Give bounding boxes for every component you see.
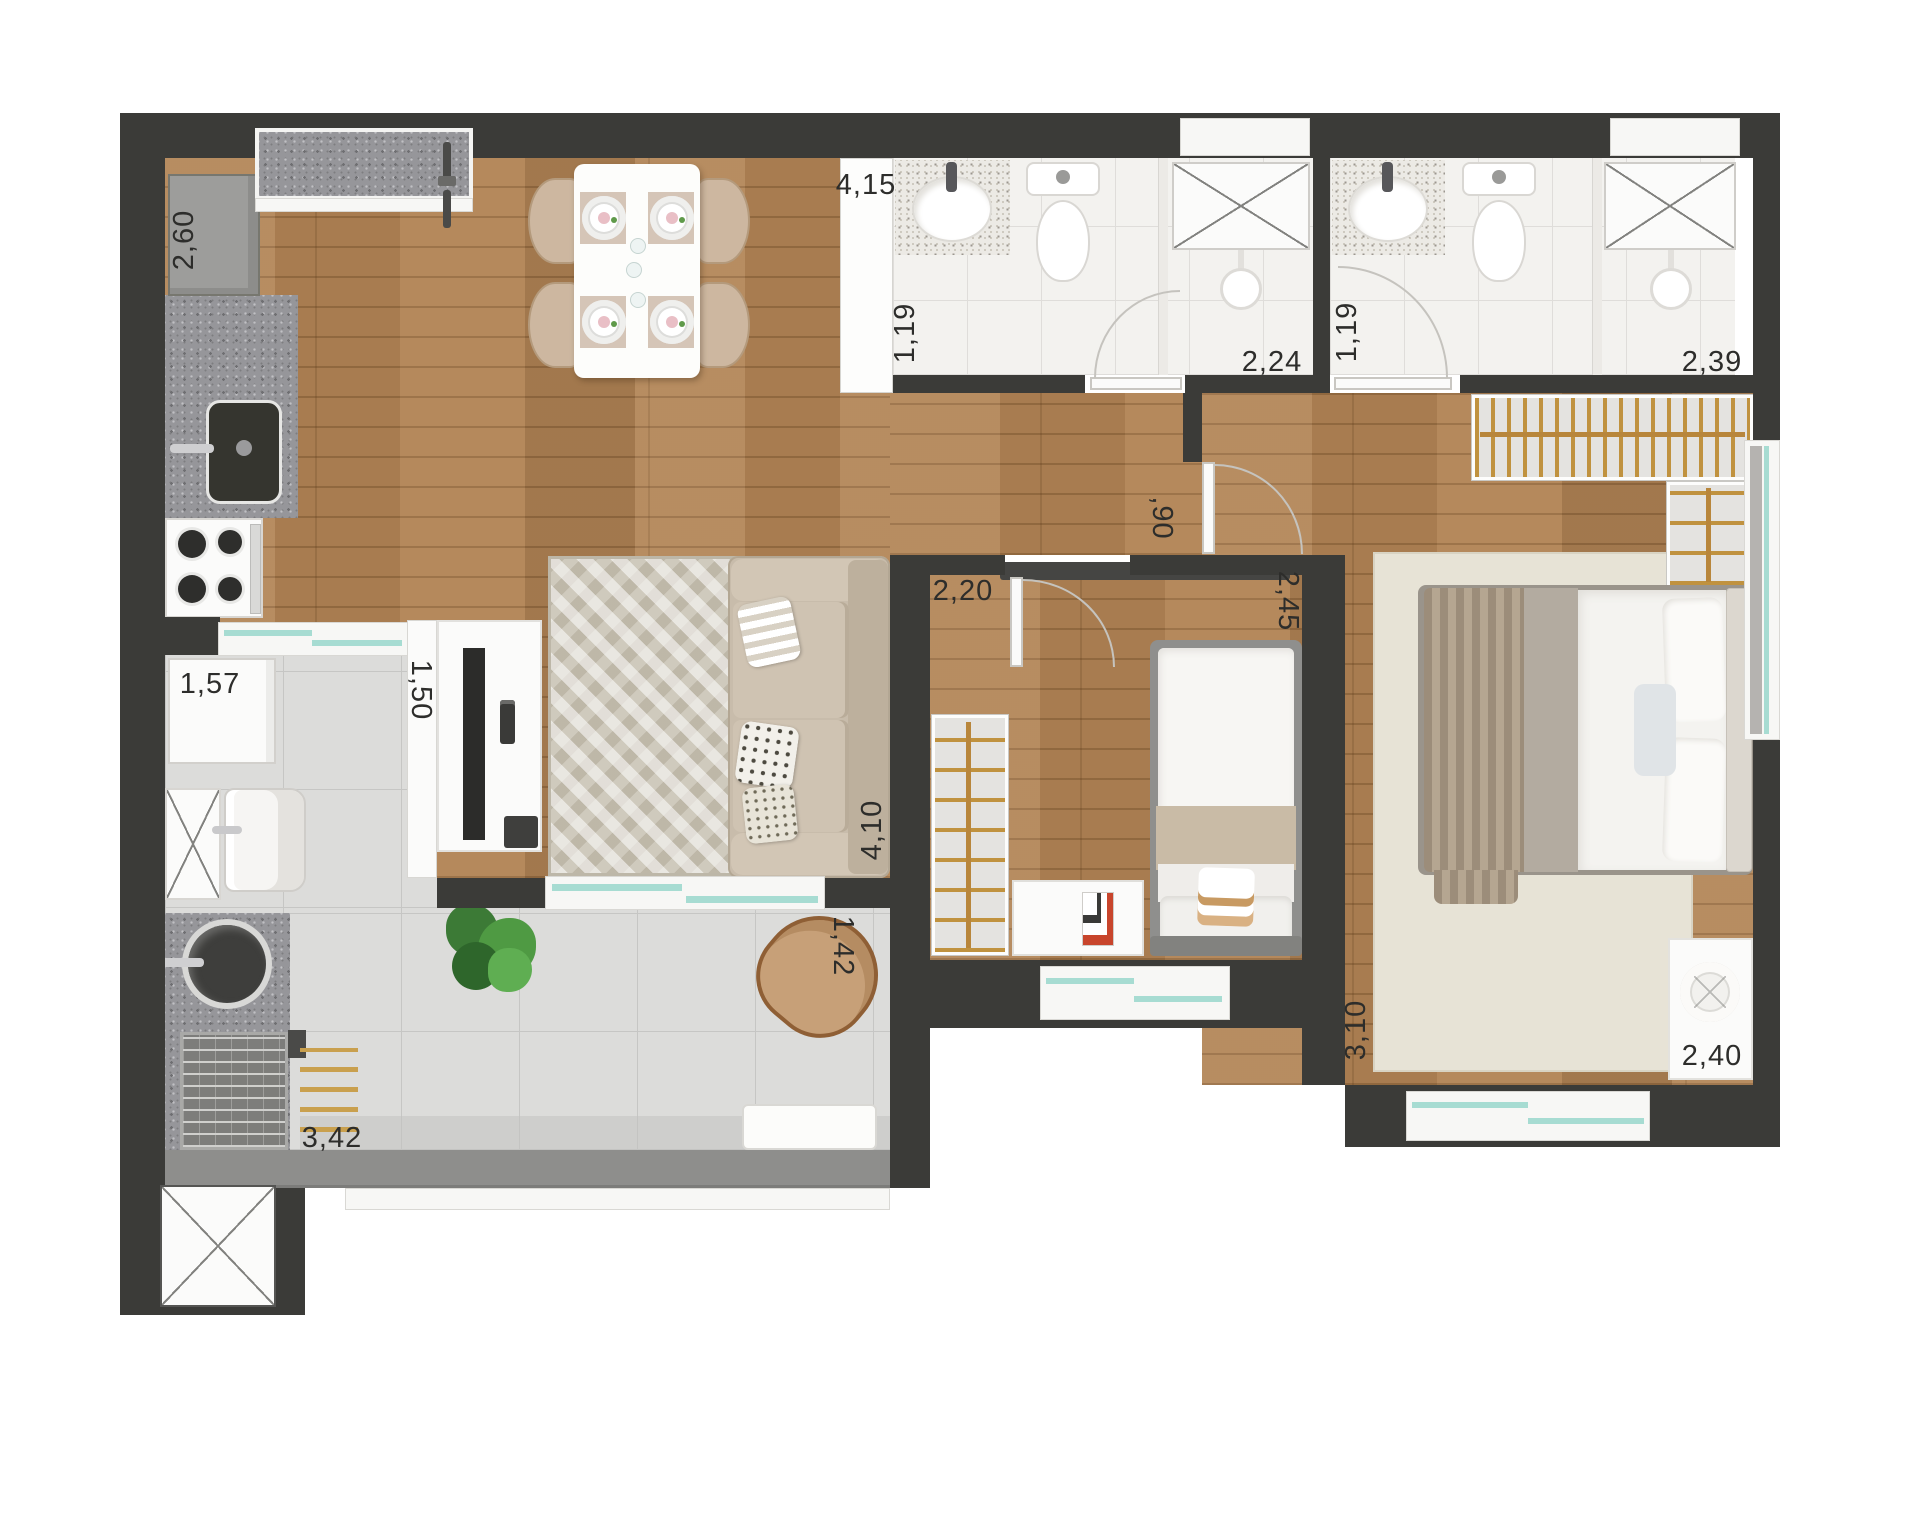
tv-panel-icon bbox=[463, 648, 485, 840]
window-icon bbox=[1040, 966, 1230, 1020]
dim-service-door-label: 1,50 bbox=[405, 647, 437, 733]
swing-door-icon bbox=[1334, 377, 1452, 390]
sliding-door-glass bbox=[552, 884, 682, 891]
bed-accent-pillow bbox=[1634, 684, 1676, 776]
dim-living-length-label: 4,10 bbox=[856, 787, 888, 873]
kitchen-faucet-icon bbox=[170, 444, 214, 453]
dim-washer-label: 1,57 bbox=[160, 669, 260, 699]
window-glass bbox=[1046, 978, 1134, 984]
stove-icon bbox=[165, 518, 263, 618]
flower-decor bbox=[598, 212, 610, 224]
wall-bedroom2-west bbox=[890, 575, 930, 1188]
grill-icon bbox=[180, 1032, 288, 1150]
flower-decor bbox=[666, 316, 678, 328]
shower-tray-icon bbox=[1172, 162, 1310, 250]
window-pane bbox=[1750, 446, 1762, 734]
dim-master-length-label: 3,10 bbox=[1340, 987, 1372, 1073]
stove-burner-2 bbox=[218, 530, 242, 554]
remote-icon bbox=[500, 700, 515, 744]
window-glass bbox=[1134, 996, 1222, 1002]
glass-decor bbox=[630, 292, 646, 308]
sliding-door-glass bbox=[224, 630, 312, 636]
entry-sill bbox=[255, 198, 473, 212]
bowl-faucet-icon bbox=[160, 958, 204, 967]
stove-burner-1 bbox=[178, 530, 206, 558]
entry-landing bbox=[255, 128, 473, 200]
dim-entry-span-label: 4,15 bbox=[816, 170, 916, 200]
lamp-cross bbox=[1694, 976, 1726, 1008]
dining-chair-icon bbox=[696, 282, 750, 368]
wall-hall-stub bbox=[1183, 393, 1202, 462]
dim-refrigerator-label: 2,60 bbox=[168, 197, 200, 283]
dim-terrace-depth-label: 1,42 bbox=[827, 903, 859, 989]
bed-throw-drape bbox=[1434, 870, 1518, 904]
dining-chair-icon bbox=[696, 178, 750, 264]
window-glass bbox=[1764, 446, 1769, 734]
flower-decor bbox=[598, 316, 610, 328]
toilet-button bbox=[1056, 170, 1070, 184]
wall-left bbox=[120, 113, 165, 1315]
media-box-icon bbox=[504, 816, 538, 848]
dim-bedroom2-width-label: 2,45 bbox=[1272, 558, 1304, 644]
dim-terrace-length-label: 3,42 bbox=[282, 1123, 382, 1153]
wall-hall-south-a bbox=[890, 555, 1005, 575]
dim-bath2-width-label: 1,19 bbox=[1331, 289, 1363, 375]
sofa-pillow-leaf bbox=[734, 720, 800, 789]
closet-rail bbox=[966, 722, 971, 948]
bench-icon bbox=[742, 1104, 877, 1150]
bed-blanket-gray bbox=[1524, 588, 1578, 872]
dim-bath2-length-label: 2,39 bbox=[1662, 347, 1762, 377]
bed2-mattress bbox=[1158, 648, 1294, 813]
wall-service-stub bbox=[165, 617, 220, 655]
sliding-door-icon bbox=[545, 876, 825, 910]
dim-hall-width-label: ,90 bbox=[1146, 475, 1178, 561]
entry-door-handle-icon bbox=[443, 142, 451, 180]
dim-bedroom2-entry-label: 2,20 bbox=[913, 576, 1013, 606]
entry-door-handle-bar bbox=[438, 176, 456, 186]
window-glass bbox=[1528, 1118, 1644, 1124]
bed2-blanket bbox=[1156, 806, 1296, 870]
bed2-footboard bbox=[1150, 936, 1302, 956]
swing-door-icon bbox=[1202, 462, 1215, 554]
toilet-bowl bbox=[1472, 200, 1526, 282]
toilet-button bbox=[1492, 170, 1506, 184]
bedroom2-lowboard bbox=[1012, 880, 1144, 956]
sliding-door-glass bbox=[312, 640, 402, 646]
dim-bath1-width-label: 1,19 bbox=[889, 290, 921, 376]
tub-faucet-icon bbox=[212, 826, 242, 834]
floor-plan-canvas: 2,60 4,15 1,19 2,24 1,19 2,39 ,90 2,20 2… bbox=[0, 0, 1920, 1518]
glass-decor bbox=[630, 238, 646, 254]
wardrobe-hangers-icon bbox=[1472, 395, 1753, 480]
stove-burner-4 bbox=[218, 577, 242, 601]
terrace-outer-sill bbox=[345, 1188, 890, 1210]
dim-master-width-label: 2,40 bbox=[1662, 1041, 1762, 1071]
sliding-door-glass bbox=[686, 896, 818, 903]
basin-faucet-icon bbox=[1382, 162, 1393, 192]
laundry-tub-icon bbox=[224, 788, 306, 892]
shower-tray-icon bbox=[1604, 162, 1736, 250]
window-icon bbox=[1406, 1091, 1650, 1141]
dim-bath1-length-label: 2,24 bbox=[1222, 347, 1322, 377]
marble-divider bbox=[1592, 158, 1602, 375]
window-glass bbox=[1412, 1102, 1528, 1108]
glass-decor bbox=[626, 262, 642, 278]
terrace-parapet bbox=[165, 1150, 890, 1188]
bed-throw-striped bbox=[1424, 588, 1524, 872]
window-icon bbox=[1610, 118, 1740, 156]
flower-decor bbox=[666, 212, 678, 224]
bed2-art-pillow bbox=[1197, 867, 1255, 927]
kitchen-faucet-base bbox=[236, 440, 252, 456]
skewers-icon bbox=[300, 1048, 358, 1132]
wall-bath-south-a bbox=[893, 375, 1085, 393]
toilet-bowl bbox=[1036, 200, 1090, 282]
stove-burner-3 bbox=[178, 575, 206, 603]
wall-living-balcony-a bbox=[437, 878, 547, 908]
utility-cabinet-icon bbox=[165, 788, 221, 900]
stove-knob-strip bbox=[250, 524, 261, 614]
wardrobe-rail bbox=[1480, 432, 1745, 437]
wardrobe-side-rail bbox=[1706, 488, 1711, 582]
basin-faucet-icon bbox=[946, 162, 957, 192]
shower-head-icon bbox=[1220, 268, 1262, 310]
duct-shaft-icon bbox=[160, 1185, 276, 1307]
sliding-door-icon bbox=[218, 622, 408, 656]
window-icon bbox=[1180, 118, 1310, 156]
sofa-pillow-floral bbox=[741, 783, 799, 844]
shower-head-icon bbox=[1650, 268, 1692, 310]
swing-door-icon bbox=[1090, 377, 1182, 390]
artwork-card bbox=[1082, 892, 1114, 946]
